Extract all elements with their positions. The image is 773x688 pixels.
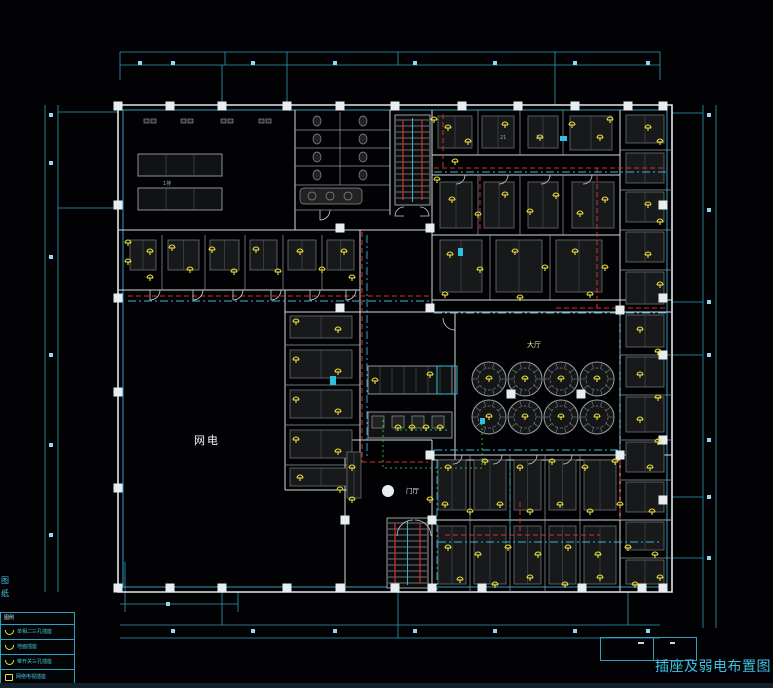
socket-symbol bbox=[275, 269, 281, 275]
legend-row: 带开关三孔插座 bbox=[1, 654, 74, 669]
socket-symbol bbox=[542, 265, 548, 271]
room-number-2: 23 bbox=[536, 135, 542, 141]
lobby-feature-circle bbox=[382, 485, 394, 497]
legend-label: 网络电视插座 bbox=[16, 675, 46, 680]
socket-symbol bbox=[587, 292, 593, 298]
toilet-fixtures bbox=[300, 116, 367, 204]
left-room-label: 网电 bbox=[194, 434, 220, 447]
bottom-strip bbox=[0, 683, 773, 688]
socket-symbol bbox=[434, 177, 440, 183]
title-block-mark bbox=[670, 642, 675, 644]
socket-symbol bbox=[602, 265, 608, 271]
round-tables-layer bbox=[472, 362, 614, 434]
legend-row: 网络电视插座 bbox=[1, 669, 74, 684]
legend-table: 图例 单相二三孔插座 地面插座 带开关三孔插座 网络电视插座 bbox=[0, 612, 75, 685]
rect-tables-layer bbox=[138, 154, 222, 210]
dining-hall-label: 大厅 bbox=[527, 340, 541, 349]
socket-symbol-icon bbox=[5, 660, 14, 665]
socket-symbol bbox=[147, 275, 153, 281]
wall-fixtures-layer bbox=[144, 119, 271, 123]
cad-viewport: 网电 大厅 门厅 1排 21 23 图例 单相二三孔插座 地面插座 带开关三孔插… bbox=[0, 0, 773, 688]
socket-symbol bbox=[442, 292, 448, 298]
socket-symbol bbox=[652, 552, 658, 558]
legend-label: 地面插座 bbox=[17, 645, 37, 650]
legend-label: 带开关三孔插座 bbox=[17, 660, 52, 665]
stage-and-bar bbox=[368, 366, 457, 438]
title-block-mark bbox=[638, 642, 644, 644]
drawing-title: 插座及弱电布置图 bbox=[655, 656, 771, 676]
legend-label: 单相二三孔插座 bbox=[17, 630, 52, 635]
title-block-divider bbox=[653, 638, 654, 660]
socket-symbol-icon bbox=[5, 645, 14, 650]
stairs-layer bbox=[387, 115, 430, 588]
network-symbol-icon bbox=[5, 674, 13, 681]
legend-row: 地面插座 bbox=[1, 639, 74, 654]
room-number-1: 21 bbox=[500, 135, 506, 141]
legend-header: 图例 bbox=[1, 613, 74, 624]
floor-plan-svg: 网电 大厅 门厅 1排 21 23 bbox=[0, 0, 773, 688]
socket-symbol-icon bbox=[5, 630, 14, 635]
lobby-label: 门厅 bbox=[406, 486, 420, 495]
table-row-label: 1排 bbox=[163, 180, 171, 187]
socket-symbol bbox=[452, 159, 458, 165]
socket-symbol bbox=[337, 487, 343, 493]
axis-side-note: 图纸 bbox=[1, 574, 11, 600]
socket-symbol bbox=[349, 275, 355, 281]
legend-row: 单相二三孔插座 bbox=[1, 624, 74, 639]
